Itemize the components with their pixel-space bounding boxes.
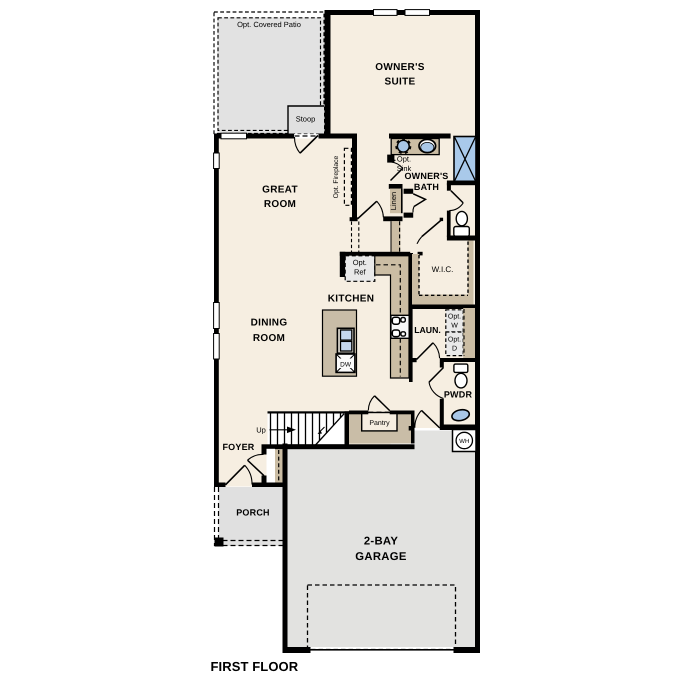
svg-text:Ref: Ref <box>354 268 367 277</box>
svg-text:SUITE: SUITE <box>385 77 416 88</box>
svg-text:W: W <box>451 323 458 330</box>
svg-text:Stoop: Stoop <box>296 115 316 124</box>
svg-text:FIRST FLOOR: FIRST FLOOR <box>211 659 299 674</box>
svg-text:Opt. Fireplace: Opt. Fireplace <box>333 155 340 198</box>
svg-text:Up: Up <box>256 426 266 435</box>
svg-text:DW: DW <box>340 362 352 369</box>
svg-text:PORCH: PORCH <box>236 508 270 518</box>
svg-text:WH: WH <box>459 438 469 445</box>
svg-text:D: D <box>452 346 457 353</box>
svg-text:GARAGE: GARAGE <box>355 551 407 563</box>
svg-text:FOYER: FOYER <box>222 442 254 452</box>
svg-text:OWNER'S: OWNER'S <box>375 62 425 73</box>
svg-text:W.I.C.: W.I.C. <box>432 265 454 274</box>
svg-text:Pantry: Pantry <box>369 420 390 427</box>
svg-text:Opt.: Opt. <box>353 258 367 267</box>
svg-text:PWDR: PWDR <box>444 390 473 400</box>
svg-text:Opt.: Opt. <box>448 337 461 344</box>
svg-text:GREAT: GREAT <box>262 185 298 196</box>
svg-text:BATH: BATH <box>414 182 439 192</box>
svg-text:OWNER'S: OWNER'S <box>404 171 448 181</box>
svg-text:Opt. Covered Patio: Opt. Covered Patio <box>237 20 301 29</box>
svg-text:LAUN.: LAUN. <box>414 325 441 335</box>
svg-text:ROOM: ROOM <box>253 333 285 344</box>
svg-text:Linen: Linen <box>389 192 398 210</box>
svg-text:KITCHEN: KITCHEN <box>328 294 375 305</box>
svg-text:DINING: DINING <box>251 318 288 329</box>
svg-text:ROOM: ROOM <box>264 199 296 210</box>
svg-text:Opt.: Opt. <box>448 314 461 321</box>
svg-text:2-BAY: 2-BAY <box>364 536 399 548</box>
svg-text:Opt.: Opt. <box>397 155 411 164</box>
